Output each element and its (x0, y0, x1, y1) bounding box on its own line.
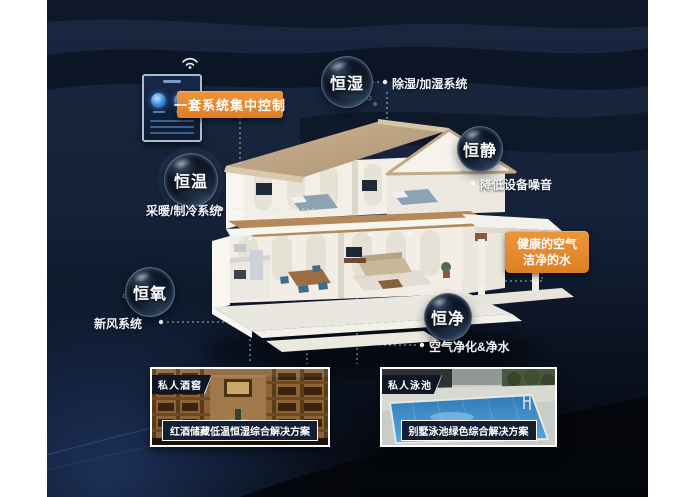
photo-caption: 红酒储藏低温恒湿综合解决方案 (162, 420, 318, 441)
phone-stat-row (150, 132, 194, 134)
bubble-label: 恒静 (463, 137, 497, 161)
bubble-label: 恒氧 (133, 280, 167, 304)
photo-swimming-pool: 私人泳池 别墅泳池绿色综合解决方案 (380, 367, 557, 447)
bubble-constant-temperature: 恒温 (164, 153, 218, 207)
note-heating-cooling: 采暖/制冷系统 (146, 202, 221, 219)
phone-label-bar (153, 111, 165, 113)
infographic-canvas: 一套系统集中控制 恒湿 恒静 恒温 恒氧 恒净 除湿/加湿系统 降低设备噪音 采… (0, 0, 700, 497)
bubble-constant-humidity: 恒湿 (321, 56, 373, 108)
phone-dial-icon (151, 93, 166, 108)
bubble-label: 恒温 (174, 168, 208, 192)
note-dehumidify-system: 除湿/加湿系统 (392, 75, 467, 92)
central-control-label: 一套系统集中控制 (177, 91, 283, 118)
note-air-water-purify: 空气净化&净水 (429, 338, 510, 355)
phone-title-bar (163, 80, 181, 83)
bubble-label: 恒净 (431, 305, 465, 329)
photo-wine-cellar: 私人酒窖 红酒储藏低温恒湿综合解决方案 (150, 367, 330, 447)
phone-stat-row (150, 126, 194, 128)
bubble-constant-purity: 恒净 (424, 293, 472, 341)
photo-caption: 别墅泳池绿色综合解决方案 (401, 420, 537, 441)
highlight-line2: 洁净的水 (509, 252, 585, 268)
photo-tag: 私人酒窖 (152, 375, 212, 394)
note-fresh-air: 新风系统 (94, 315, 142, 332)
highlight-line1: 健康的空气 (509, 236, 585, 252)
bubble-label: 恒湿 (330, 70, 364, 94)
bubble-constant-quiet: 恒静 (457, 126, 503, 172)
healthy-air-water-box: 健康的空气 洁净的水 (505, 231, 589, 273)
photo-tag: 私人泳池 (382, 375, 442, 394)
note-noise-reduction: 降低设备噪音 (480, 176, 552, 193)
phone-stat-row (150, 120, 194, 122)
bubble-constant-oxygen: 恒氧 (125, 267, 175, 317)
